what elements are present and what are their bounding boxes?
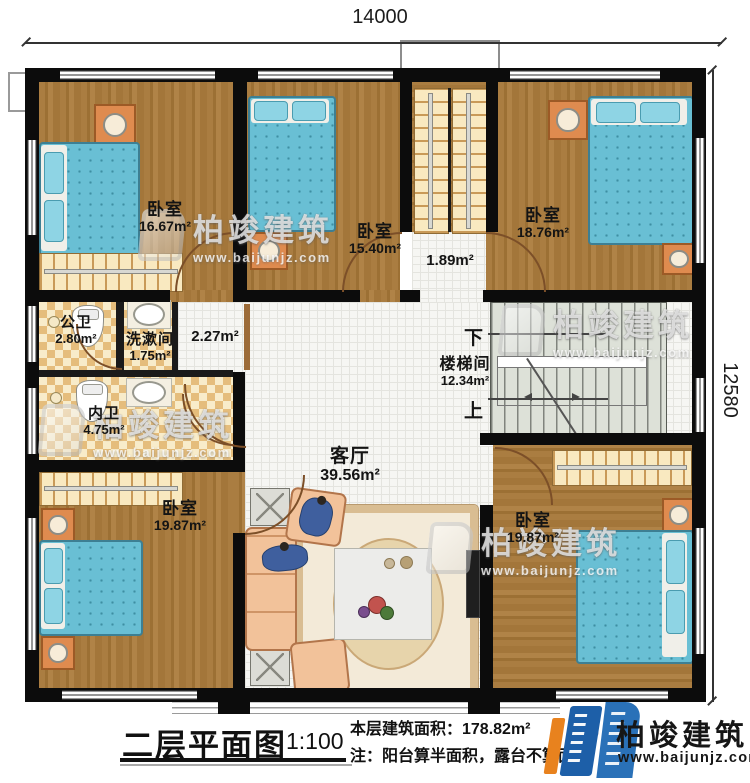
wall-segment xyxy=(233,68,247,302)
room-name: 客厅 xyxy=(285,446,415,467)
room-name: 内卫 xyxy=(68,406,140,423)
wall-segment xyxy=(25,290,170,302)
window xyxy=(695,528,705,654)
wardrobe-rail xyxy=(466,93,471,229)
floor-door-threshold xyxy=(480,446,493,505)
wardrobe-rail xyxy=(44,269,178,274)
pillow xyxy=(44,152,64,194)
room-name: 卧室 xyxy=(478,206,608,225)
nightstand xyxy=(41,508,75,542)
cup-icon xyxy=(384,558,395,569)
pillow xyxy=(666,590,685,634)
floor-plan-page: 14000 12580 xyxy=(0,0,750,783)
coffee-table xyxy=(334,548,432,640)
flower-icon xyxy=(358,606,370,618)
floor-stair-landing xyxy=(665,302,692,433)
nightstand xyxy=(548,100,588,140)
nightstand xyxy=(662,498,696,532)
room-area: 12.34m² xyxy=(415,374,515,389)
dimension-width-label: 14000 xyxy=(330,6,430,29)
side-table xyxy=(250,648,290,686)
wall-segment xyxy=(25,460,245,472)
pillow xyxy=(44,548,63,584)
wall-segment xyxy=(39,370,233,377)
wall-segment xyxy=(448,88,451,232)
wardrobe-rail xyxy=(428,93,433,229)
stair-guide-line xyxy=(488,333,606,335)
wall-segment xyxy=(233,290,360,302)
room-label-living-room: 客厅 39.56m² xyxy=(285,446,415,485)
window xyxy=(510,70,660,80)
window xyxy=(695,378,705,432)
dimension-line-top xyxy=(25,42,722,44)
room-name: 卧室 xyxy=(468,511,598,530)
stair-down-label: 下 xyxy=(464,323,483,350)
window xyxy=(258,70,393,80)
room-name: 公卫 xyxy=(40,315,112,332)
room-area: 16.67m² xyxy=(100,219,230,235)
dimension-line-right xyxy=(712,70,714,702)
sink xyxy=(133,303,165,326)
floor-drain-icon xyxy=(50,392,62,404)
window xyxy=(27,306,37,362)
floor-hall-passage xyxy=(420,290,483,302)
room-area: 39.56m² xyxy=(285,467,415,485)
stair-up-label: 上 xyxy=(464,396,483,423)
stair-guide-line xyxy=(488,398,608,400)
stair-arrow-icon xyxy=(524,393,532,401)
window xyxy=(60,70,215,80)
window xyxy=(62,690,197,700)
room-label-bedroom-bottom-left: 卧室 19.87m² xyxy=(115,499,245,534)
room-area: 4.75m² xyxy=(68,423,140,438)
nightstand xyxy=(94,104,136,146)
room-label-bedroom-top-right: 卧室 18.76m² xyxy=(478,206,608,241)
wall-segment xyxy=(400,68,412,232)
nightstand xyxy=(41,636,75,670)
brand-name: 柏竣建筑 xyxy=(616,712,748,754)
window xyxy=(27,140,37,235)
room-area: 2.80m² xyxy=(40,332,112,347)
flower-icon xyxy=(380,606,394,620)
pillow xyxy=(596,102,636,123)
room-label-public-bath: 公卫 2.80m² xyxy=(40,315,112,346)
plan-scale: 1:100 xyxy=(286,728,344,755)
stair-arrow-icon xyxy=(572,393,580,401)
pillow xyxy=(666,540,685,584)
pillow xyxy=(44,588,63,624)
room-label-private-bath: 内卫 4.75m² xyxy=(68,406,140,437)
room-name: 卧室 xyxy=(310,222,440,241)
brand-logo-blue-shape xyxy=(559,706,602,776)
brand-url: www.baijunjz.com xyxy=(618,750,750,766)
room-area: 19.87m² xyxy=(468,530,598,546)
sink xyxy=(132,381,166,404)
wall-segment xyxy=(400,290,420,302)
title-underline xyxy=(120,758,346,762)
floor-area-value: 本层建筑面积：178.82m² xyxy=(350,721,531,738)
pillow xyxy=(254,101,288,121)
pillow xyxy=(292,101,326,121)
room-label-stairwell: 楼梯间 12.34m² xyxy=(415,356,515,388)
nightstand xyxy=(250,232,288,270)
pillow xyxy=(44,200,64,242)
room-label-bedroom-top-left: 卧室 16.67m² xyxy=(100,200,230,235)
room-name: 卧室 xyxy=(115,499,245,518)
room-area: 18.76m² xyxy=(478,225,608,241)
cup-icon xyxy=(400,556,413,569)
room-label-bedroom-bottom-right: 卧室 19.87m² xyxy=(468,511,598,546)
window xyxy=(27,518,37,650)
room-label-corridor: 2.27m² xyxy=(180,328,250,345)
tv xyxy=(466,550,480,618)
dimension-height-label: 12580 xyxy=(721,345,741,435)
window xyxy=(695,138,705,263)
room-name: 楼梯间 xyxy=(415,356,515,374)
wardrobe-rail xyxy=(557,465,687,470)
nightstand xyxy=(662,243,696,275)
wall-segment xyxy=(233,533,245,688)
pillow xyxy=(640,102,680,123)
room-label-hall: 1.89m² xyxy=(410,252,490,269)
room-area: 1.75m² xyxy=(108,349,192,364)
wardrobe-rail xyxy=(44,486,178,491)
wall-segment xyxy=(480,433,692,445)
room-area: 19.87m² xyxy=(115,518,245,534)
title-underline-thin xyxy=(120,764,352,766)
window xyxy=(27,388,37,454)
room-name: 卧室 xyxy=(100,200,230,219)
window xyxy=(556,690,668,700)
